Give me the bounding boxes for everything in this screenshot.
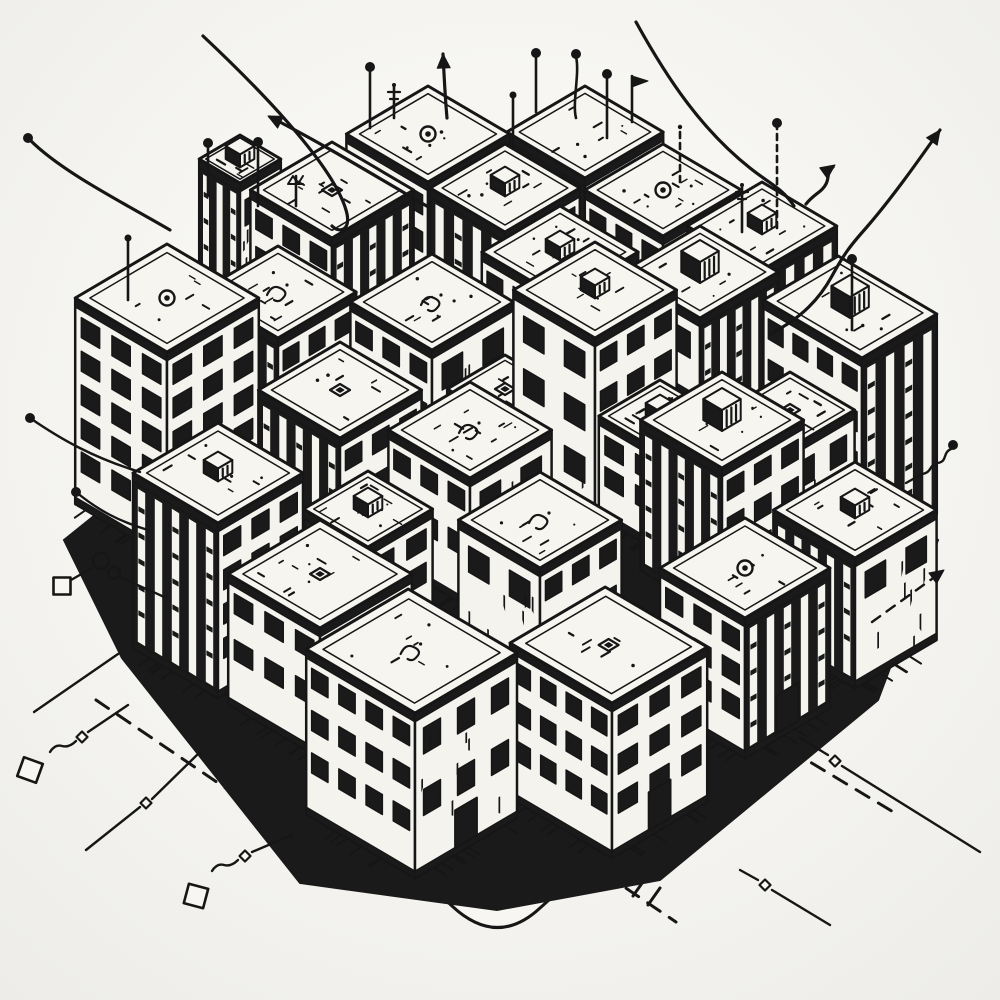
circuit-trace — [212, 860, 238, 871]
circuit-trace — [152, 752, 200, 799]
trace-node-dot — [25, 413, 35, 423]
city-illustration — [0, 0, 1000, 1000]
trace-node-dot — [71, 487, 81, 497]
circuit-trace — [842, 766, 980, 852]
circuit-trace — [772, 890, 830, 925]
antenna — [531, 48, 541, 112]
arrow — [806, 165, 835, 204]
illustration-canvas — [0, 0, 1000, 1000]
trace-node-dot — [948, 440, 958, 450]
circuit-trace — [86, 807, 140, 850]
circuit-trace — [740, 870, 758, 880]
circuit-trace — [50, 741, 76, 752]
circuit-trace — [34, 654, 118, 712]
arrow — [23, 133, 170, 230]
